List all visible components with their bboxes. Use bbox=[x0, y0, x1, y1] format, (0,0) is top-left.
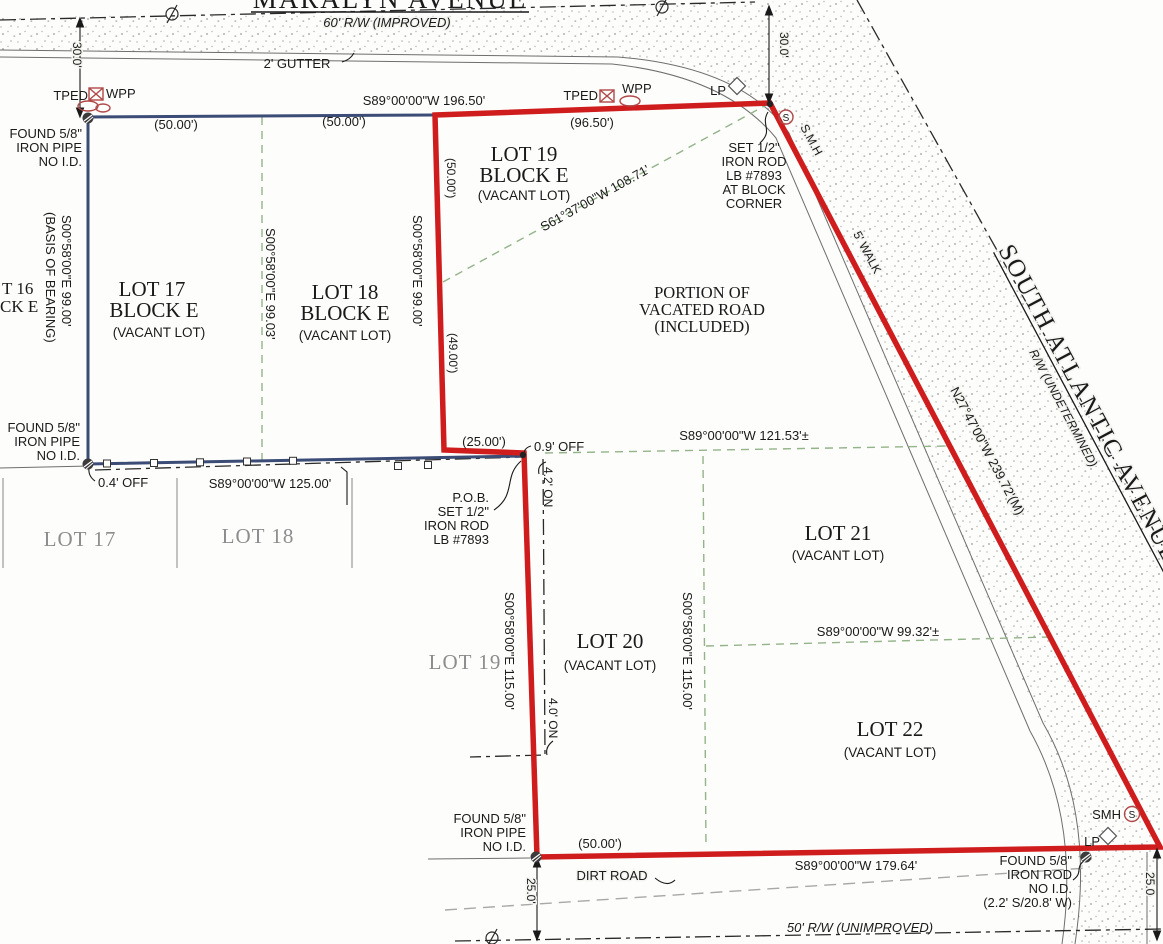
gray-lot19-label: LOT 19 bbox=[429, 650, 502, 674]
dim-25-bottom: 25.0' bbox=[524, 878, 538, 904]
centerline-symbols bbox=[166, 0, 668, 944]
lot17-label: LOT 17 BLOCK E (VACANT LOT) bbox=[109, 277, 205, 340]
bearing-17964: S89°00'00"W 179.64' bbox=[795, 858, 917, 873]
bearing-north-196: S89°00'00"W 196.50' bbox=[363, 93, 485, 108]
svg-text:CORNER: CORNER bbox=[726, 196, 782, 211]
bracket-125 bbox=[341, 467, 347, 505]
svg-text:LOT 22: LOT 22 bbox=[857, 717, 924, 741]
svg-text:IRON ROD: IRON ROD bbox=[424, 518, 489, 533]
svg-text:(INCLUDED): (INCLUDED) bbox=[654, 317, 749, 336]
svg-text:NO I.D.: NO I.D. bbox=[39, 154, 82, 169]
lp-label-bottom: LP bbox=[1084, 834, 1100, 849]
svg-text:(VACANT LOT): (VACANT LOT) bbox=[113, 325, 206, 340]
svg-text:T 16: T 16 bbox=[2, 279, 33, 298]
svg-text:NO I.D.: NO I.D. bbox=[1029, 881, 1072, 896]
lot21-label: LOT 21 (VACANT LOT) bbox=[792, 521, 885, 563]
leader-pob bbox=[494, 461, 521, 510]
bearing-115-west: S00°58'00"E 115.00' bbox=[502, 592, 517, 710]
dim-30-left: 30.0' bbox=[70, 42, 84, 68]
tped-label-right: TPED bbox=[563, 88, 598, 103]
gutter-label: 2' GUTTER bbox=[264, 56, 331, 71]
svg-text:IRON PIPE: IRON PIPE bbox=[460, 825, 526, 840]
bearing-9903: S00°58'00"E 99.03' bbox=[263, 228, 278, 340]
svg-text:BLOCK E: BLOCK E bbox=[479, 163, 568, 187]
svg-text:FOUND 5/8": FOUND 5/8" bbox=[453, 811, 526, 826]
lot16-label: T 16 CK E bbox=[0, 279, 38, 316]
lot20-label: LOT 20 (VACANT LOT) bbox=[564, 629, 657, 673]
leader-04-off bbox=[89, 468, 95, 481]
pob-label: P.O.B. SET 1/2" IRON ROD LB #7893 bbox=[424, 490, 489, 547]
pob-point bbox=[520, 452, 526, 458]
cl-symbol-south-road bbox=[486, 929, 498, 944]
basis-bearing-text: S00°58'00"E 99.00' bbox=[59, 215, 74, 327]
found-rod-se bbox=[1081, 852, 1092, 863]
smh-s-top: S bbox=[783, 113, 790, 124]
svg-text:IRON PIPE: IRON PIPE bbox=[16, 140, 82, 155]
svg-text:(VACANT LOT): (VACANT LOT) bbox=[299, 328, 392, 343]
maralyn-rw-label: 60' R/W (IMPROVED) bbox=[323, 15, 450, 30]
bearing-125: S89°00'00"W 125.00' bbox=[209, 476, 331, 491]
bearing-9900-east: S00°58'00"E 99.00' bbox=[410, 215, 425, 327]
smh-label-bottom: SMH bbox=[1092, 807, 1121, 822]
svg-text:IRON ROD: IRON ROD bbox=[722, 154, 787, 169]
svg-text:LOT 20: LOT 20 bbox=[577, 629, 644, 653]
dirt-road-label: DIRT ROAD bbox=[576, 868, 647, 883]
wpp-label-left: WPP bbox=[106, 86, 136, 101]
lot18-label: LOT 18 BLOCK E (VACANT LOT) bbox=[299, 280, 392, 343]
monument-tie-line bbox=[428, 858, 530, 859]
svg-text:(2.2' S/20.8' W): (2.2' S/20.8' W) bbox=[983, 895, 1072, 910]
svg-text:IRON ROD: IRON ROD bbox=[1007, 867, 1072, 882]
dist-25: (25.00') bbox=[462, 434, 506, 449]
lotline-12153 bbox=[545, 446, 948, 453]
svg-text:AT BLOCK: AT BLOCK bbox=[722, 182, 785, 197]
found-pipe-s bbox=[531, 852, 542, 863]
wpp-symbol-left2 bbox=[96, 104, 110, 112]
dim-30-right: 30.0' bbox=[777, 32, 791, 58]
bearing-115-east: S00°58'00"E 115.00' bbox=[680, 592, 695, 710]
tped-symbol-right bbox=[600, 90, 614, 102]
survey-plat: MARALYN AVENUE 60' R/W (IMPROVED) 2' GUT… bbox=[0, 0, 1163, 944]
found-pipe-s-label: FOUND 5/8" IRON PIPE NO I.D. bbox=[453, 811, 526, 854]
svg-text:(VACANT LOT): (VACANT LOT) bbox=[564, 658, 657, 673]
svg-text:LB #7893: LB #7893 bbox=[726, 168, 782, 183]
svg-text:(VACANT LOT): (VACANT LOT) bbox=[478, 188, 571, 203]
lp-label-top: LP bbox=[710, 83, 726, 98]
bearing-9932: S89°00'00"W 99.32'± bbox=[817, 624, 939, 639]
dist-9650: (96.50') bbox=[570, 115, 614, 130]
basis-bearing-note: (BASIS OF BEARING) bbox=[43, 212, 58, 343]
wpp-label-right: WPP bbox=[622, 81, 652, 96]
dist-50-c: (50.00') bbox=[578, 836, 622, 851]
svg-text:CK E: CK E bbox=[0, 297, 38, 316]
leader-dirt-road bbox=[655, 878, 675, 884]
svg-text:FOUND 5/8": FOUND 5/8" bbox=[999, 853, 1072, 868]
svg-text:FOUND 5/8": FOUND 5/8" bbox=[7, 420, 80, 435]
gray-lot18-label: LOT 18 bbox=[222, 524, 295, 548]
svg-text:SET 1/2": SET 1/2" bbox=[728, 140, 780, 155]
lotline-20-21 bbox=[703, 456, 706, 848]
svg-text:NO I.D.: NO I.D. bbox=[37, 448, 80, 463]
dist-50-rot: (50.00') bbox=[444, 158, 458, 198]
road-pavement-texture bbox=[0, 0, 1163, 944]
svg-text:NO I.D.: NO I.D. bbox=[483, 839, 526, 854]
found-rod-se-label: FOUND 5/8" IRON ROD NO I.D. (2.2' S/20.8… bbox=[983, 853, 1072, 910]
tped-symbol-left bbox=[89, 88, 103, 100]
bearing-12153: S89°00'00"W 121.53'± bbox=[679, 428, 809, 443]
gray-lot17-label: LOT 17 bbox=[44, 527, 117, 551]
off-04: 0.4' OFF bbox=[98, 475, 148, 490]
svg-text:BLOCK E: BLOCK E bbox=[300, 301, 389, 325]
found-pipe-sw-label: FOUND 5/8" IRON PIPE NO I.D. bbox=[7, 420, 80, 463]
svg-text:(VACANT LOT): (VACANT LOT) bbox=[844, 745, 937, 760]
vacated-road-label: PORTION OF VACATED ROAD (INCLUDED) bbox=[639, 283, 765, 336]
svg-text:SET 1/2": SET 1/2" bbox=[438, 504, 490, 519]
svg-text:IRON PIPE: IRON PIPE bbox=[14, 434, 80, 449]
on-40: 4.0' ON bbox=[546, 698, 560, 738]
set-rod-block-corner-point bbox=[767, 101, 773, 107]
found-pipe-nw bbox=[83, 113, 94, 124]
dist-49-rot: (49.00') bbox=[446, 333, 460, 373]
svg-text:(VACANT LOT): (VACANT LOT) bbox=[792, 548, 885, 563]
set-rod-block-corner-label: SET 1/2" IRON ROD LB #7893 AT BLOCK CORN… bbox=[722, 140, 787, 211]
smh-s-bottom: S bbox=[1129, 810, 1136, 821]
lot22-label: LOT 22 (VACANT LOT) bbox=[844, 717, 937, 760]
tped-label-left: TPED bbox=[53, 88, 88, 103]
found-pipe-sw bbox=[83, 459, 94, 470]
south-road-rw: 50' R/W (UNIMPROVED) bbox=[787, 920, 933, 935]
adjacent-lot-lines bbox=[3, 478, 352, 568]
wpp-symbol-right bbox=[620, 96, 640, 106]
svg-text:P.O.B.: P.O.B. bbox=[452, 490, 489, 505]
found-pipe-nw-label: FOUND 5/8" IRON PIPE NO I.D. bbox=[9, 126, 82, 169]
dist-50-b: (50.00') bbox=[322, 114, 366, 129]
adjacent-line-left bbox=[0, 466, 90, 468]
dist-50-a: (50.00') bbox=[154, 117, 198, 132]
svg-text:LB #7893: LB #7893 bbox=[433, 532, 489, 547]
off-09: 0.9' OFF bbox=[534, 439, 584, 454]
plat-drawing: MARALYN AVENUE 60' R/W (IMPROVED) 2' GUT… bbox=[0, 0, 1163, 944]
svg-text:FOUND 5/8": FOUND 5/8" bbox=[9, 126, 82, 141]
svg-text:LOT 21: LOT 21 bbox=[805, 521, 872, 545]
lot19-label: LOT 19 BLOCK E (VACANT LOT) bbox=[478, 142, 571, 203]
on-42: 4.2' ON bbox=[541, 467, 555, 507]
dim-25-right: 25.0 bbox=[1143, 872, 1157, 896]
bracket-40-on bbox=[547, 741, 553, 755]
svg-text:BLOCK E: BLOCK E bbox=[109, 298, 198, 322]
